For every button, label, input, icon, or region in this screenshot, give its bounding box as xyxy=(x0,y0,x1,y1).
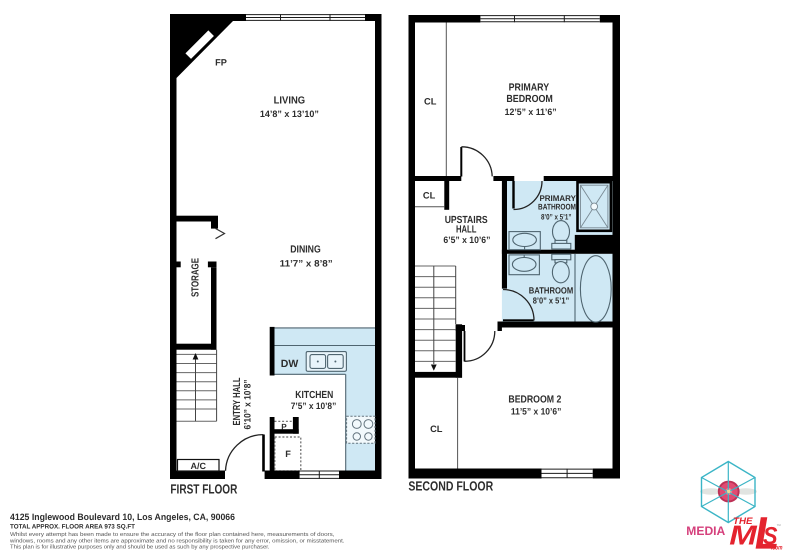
svg-text:CL: CL xyxy=(424,97,437,107)
svg-text:P: P xyxy=(281,422,287,431)
svg-text:SECOND FLOOR: SECOND FLOOR xyxy=(408,479,493,494)
svg-text:6’5” x 10’6”: 6’5” x 10’6” xyxy=(443,235,490,245)
svg-text:4125 Inglewood Boulevard 10, L: 4125 Inglewood Boulevard 10, Los Angeles… xyxy=(10,512,235,522)
svg-text:12’5” x 11’6”: 12’5” x 11’6” xyxy=(505,107,557,117)
svg-text:BEDROOM: BEDROOM xyxy=(506,94,553,105)
svg-text:PRIMARY: PRIMARY xyxy=(509,82,550,93)
svg-text:LIVING: LIVING xyxy=(274,96,306,107)
svg-text:Whilst every attempt has been: Whilst every attempt has been made to en… xyxy=(10,531,335,538)
svg-text:DW: DW xyxy=(281,358,299,370)
svg-text:M: M xyxy=(729,520,758,551)
svg-text:BATHROOM: BATHROOM xyxy=(538,203,576,212)
svg-text:F: F xyxy=(285,449,291,459)
svg-text:TOTAL APPROX. FLOOR AREA 973: TOTAL APPROX. FLOOR AREA 973 SQ.FT xyxy=(10,524,135,531)
svg-text:BEDROOM 2: BEDROOM 2 xyxy=(508,395,561,406)
svg-text:11’7” x 8’8”: 11’7” x 8’8” xyxy=(280,259,333,269)
svg-text:MEDIA: MEDIA xyxy=(686,524,725,538)
svg-text:.com: .com xyxy=(771,545,783,552)
svg-text:7’5” x 10’8”: 7’5” x 10’8” xyxy=(291,401,337,411)
svg-text:HALL: HALL xyxy=(456,225,477,236)
svg-text:CL: CL xyxy=(423,191,436,201)
svg-text:FIRST FLOOR: FIRST FLOOR xyxy=(170,482,237,497)
svg-text:™: ™ xyxy=(777,524,782,529)
svg-text:CL: CL xyxy=(430,424,443,434)
svg-text:This plan is for illustrative: This plan is for illustrative purposes o… xyxy=(10,544,270,551)
svg-text:8’0” x 5’1”: 8’0” x 5’1” xyxy=(541,212,572,221)
svg-text:FP: FP xyxy=(215,57,227,67)
svg-text:11’5” x 10’6”: 11’5” x 10’6” xyxy=(511,407,562,417)
svg-text:BATHROOM: BATHROOM xyxy=(529,285,574,295)
svg-text:windows, rooms and any other i: windows, rooms and any other items are a… xyxy=(9,537,345,544)
svg-text:A/C: A/C xyxy=(191,461,207,471)
svg-text:DINING: DINING xyxy=(290,245,321,256)
svg-text:KITCHEN: KITCHEN xyxy=(295,390,333,401)
svg-text:ENTRY HALL: ENTRY HALL xyxy=(232,378,243,426)
svg-text:STORAGE: STORAGE xyxy=(191,258,202,297)
svg-text:14’8” x 13’10”: 14’8” x 13’10” xyxy=(260,109,319,119)
svg-text:6’10” x 10’8”: 6’10” x 10’8” xyxy=(243,380,253,430)
svg-text:8’0” x 5’1”: 8’0” x 5’1” xyxy=(533,296,570,306)
